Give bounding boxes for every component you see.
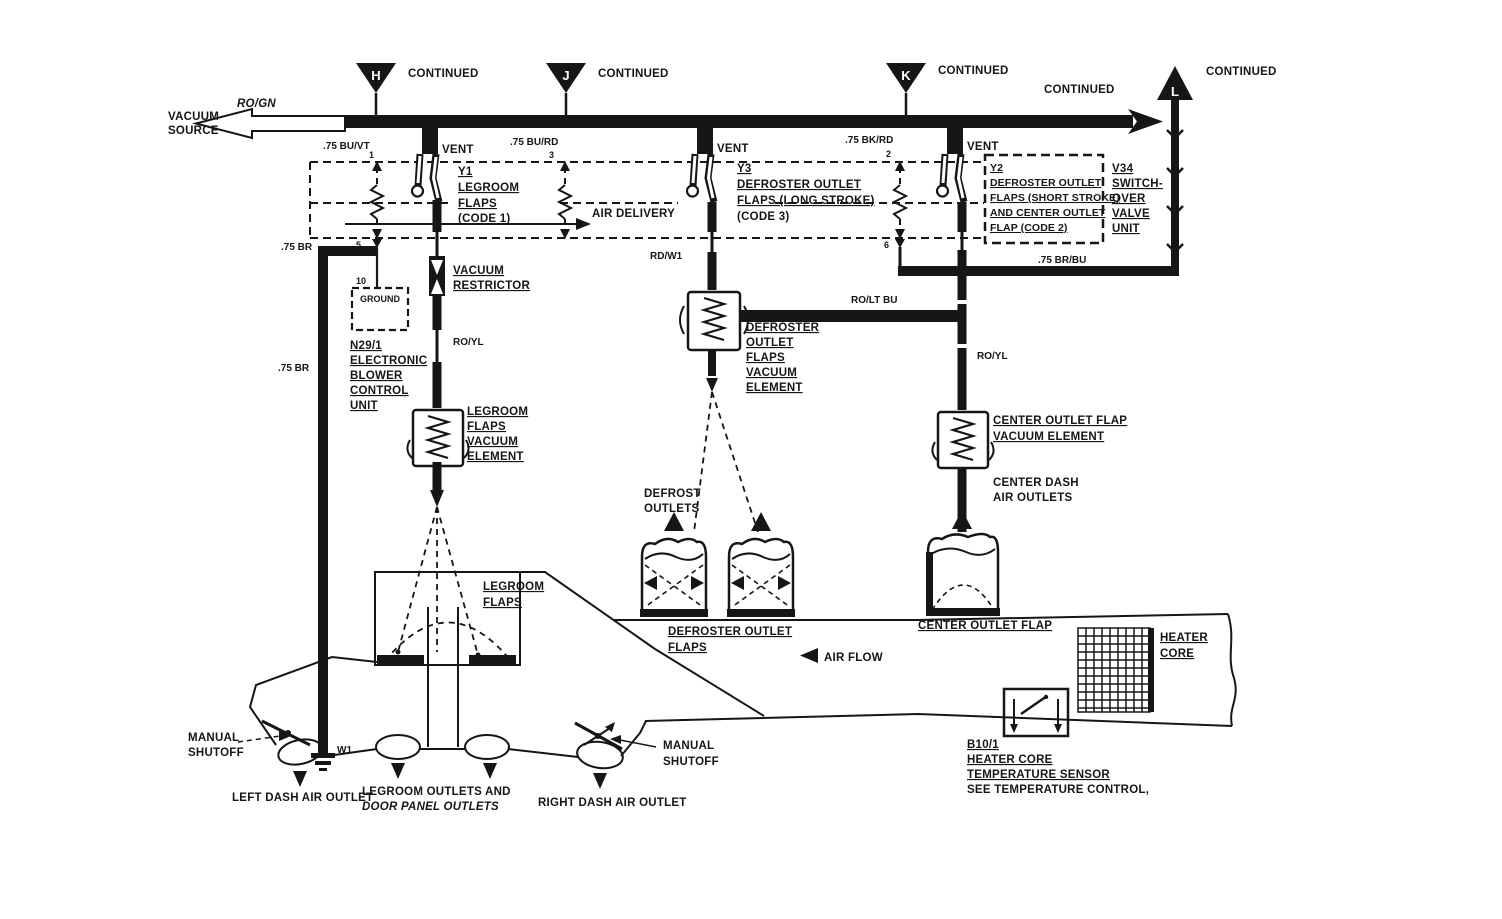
outlet-arrow-1-icon bbox=[293, 771, 307, 787]
defrost-duct-left bbox=[640, 539, 708, 617]
defroster-element-tip-icon bbox=[706, 378, 718, 392]
svg-text:UNIT: UNIT bbox=[1112, 223, 1140, 235]
svg-text:(CODE 3): (CODE 3) bbox=[737, 211, 789, 223]
ground-box-label: GROUND bbox=[360, 294, 400, 304]
connector-j: J CONTINUED bbox=[546, 63, 669, 115]
wire-ro-lt-bu-line bbox=[740, 310, 959, 322]
heater-core-edge bbox=[1148, 628, 1154, 712]
legroom-linkage-dashed bbox=[398, 507, 478, 655]
svg-text:AND CENTER OUTLET: AND CENTER OUTLET bbox=[990, 207, 1106, 219]
svg-text:ELEMENT: ELEMENT bbox=[467, 451, 524, 463]
svg-text:SEE TEMPERATURE CONTROL,: SEE TEMPERATURE CONTROL, bbox=[967, 784, 1149, 796]
port-1: 1 bbox=[369, 150, 374, 160]
svg-text:VACUUM: VACUUM bbox=[467, 436, 518, 448]
right-dash-outlet-label: RIGHT DASH AIR OUTLET bbox=[538, 797, 687, 809]
solenoid-column-right bbox=[894, 161, 906, 239]
temperature-sensor-box bbox=[1004, 689, 1068, 736]
svg-text:B10/1: B10/1 bbox=[967, 739, 999, 751]
wire-ro-lt-bu-label: RO/LT BU bbox=[851, 295, 897, 306]
svg-text:ELECTRONIC: ELECTRONIC bbox=[350, 355, 427, 367]
svg-text:OUTLET: OUTLET bbox=[746, 337, 794, 349]
svg-text:Y3: Y3 bbox=[737, 163, 752, 175]
left-dash-outlet-label: LEFT DASH AIR OUTLET bbox=[232, 792, 373, 804]
junction-right-icon bbox=[895, 239, 905, 248]
air-delivery-arrowhead-icon bbox=[576, 218, 591, 230]
wire-bu-rd-label: .75 BU/RD bbox=[510, 137, 558, 148]
svg-text:OUTLETS: OUTLETS bbox=[644, 503, 699, 515]
outlet-arrow-3-icon bbox=[483, 763, 497, 779]
svg-text:MANUAL: MANUAL bbox=[663, 740, 714, 752]
svg-text:FLAPS (SHORT STROKE): FLAPS (SHORT STROKE) bbox=[990, 192, 1120, 204]
svg-text:UNIT: UNIT bbox=[350, 400, 378, 412]
svg-text:MANUAL: MANUAL bbox=[188, 732, 239, 744]
legroom-actuator-line bbox=[429, 200, 445, 408]
svg-text:V34: V34 bbox=[1112, 163, 1134, 175]
svg-text:K: K bbox=[901, 68, 911, 83]
svg-text:CENTER OUTLET FLAP: CENTER OUTLET FLAP bbox=[993, 415, 1127, 427]
svg-text:CORE: CORE bbox=[1160, 648, 1194, 660]
svg-text:N29/1: N29/1 bbox=[350, 340, 382, 352]
vacuum-diagram: VACUUM SOURCE RO/GN H CONTINUED J CONTIN… bbox=[0, 0, 1502, 919]
legroom-vacuum-element bbox=[407, 410, 468, 490]
svg-text:DEFROSTER OUTLET: DEFROSTER OUTLET bbox=[668, 626, 792, 638]
manual-shutoff-right-label: MANUAL SHUTOFF bbox=[663, 740, 719, 768]
svg-text:LEGROOM OUTLETS AND: LEGROOM OUTLETS AND bbox=[362, 786, 511, 798]
v34-label: V34 SWITCH- OVER VALVE UNIT bbox=[1112, 163, 1163, 235]
valve-y2-label: Y2 DEFROSTER OUTLET FLAPS (SHORT STROKE)… bbox=[990, 162, 1120, 234]
manifold-arrow-right-icon bbox=[1128, 109, 1163, 134]
svg-text:H: H bbox=[371, 68, 380, 83]
defroster-element-label: DEFROSTER OUTLET FLAPS VACUUM ELEMENT bbox=[746, 322, 820, 394]
vacuum-source-label: VACUUM bbox=[168, 111, 219, 123]
svg-text:DEFROSTER: DEFROSTER bbox=[746, 322, 820, 334]
svg-text:FLAPS: FLAPS bbox=[746, 352, 785, 364]
port-6: 6 bbox=[884, 240, 889, 250]
svg-text:TEMPERATURE SENSOR: TEMPERATURE SENSOR bbox=[967, 769, 1110, 781]
valve-y3-label: Y3 DEFROSTER OUTLET FLAPS (LONG STROKE) … bbox=[737, 163, 875, 223]
svg-text:SHUTOFF: SHUTOFF bbox=[188, 747, 244, 759]
wire-br-upper-label: .75 BR bbox=[281, 242, 313, 253]
heater-core-label: HEATER CORE bbox=[1160, 632, 1208, 660]
valve-y1-label: Y1 LEGROOM FLAPS (CODE 1) bbox=[458, 166, 519, 225]
connector-h: H CONTINUED bbox=[356, 63, 479, 115]
legroom-element-tip-icon bbox=[430, 490, 444, 507]
port-3: 3 bbox=[549, 150, 554, 160]
svg-text:L: L bbox=[1171, 84, 1179, 99]
wire-bk-rd-label: .75 BK/RD bbox=[845, 135, 893, 146]
wire-rd-w1-label: RD/W1 bbox=[650, 251, 683, 262]
svg-text:FLAPS (LONG STROKE): FLAPS (LONG STROKE) bbox=[737, 195, 875, 207]
center-duct-arrow-icon bbox=[952, 510, 972, 529]
svg-text:SWITCH-: SWITCH- bbox=[1112, 178, 1163, 190]
manual-shutoff-left-label: MANUAL SHUTOFF bbox=[188, 732, 244, 759]
continued-j-label: CONTINUED bbox=[598, 68, 669, 80]
svg-text:SHUTOFF: SHUTOFF bbox=[663, 756, 719, 768]
svg-text:VALVE: VALVE bbox=[1112, 208, 1150, 220]
svg-text:LEGROOM: LEGROOM bbox=[467, 406, 528, 418]
svg-text:DEFROST: DEFROST bbox=[644, 488, 701, 500]
vent-valve-middle bbox=[687, 128, 714, 202]
svg-text:CENTER OUTLET FLAP: CENTER OUTLET FLAP bbox=[918, 620, 1052, 632]
air-flow-label: AIR FLOW bbox=[824, 652, 883, 664]
svg-text:BLOWER: BLOWER bbox=[350, 370, 403, 382]
center-element-label: CENTER OUTLET FLAP VACUUM ELEMENT bbox=[993, 415, 1127, 443]
wire-ro-gn: RO/GN bbox=[237, 98, 276, 110]
svg-text:AIR OUTLETS: AIR OUTLETS bbox=[993, 492, 1072, 504]
vent-right-label: VENT bbox=[967, 141, 999, 153]
svg-text:FLAPS: FLAPS bbox=[458, 198, 497, 210]
svg-text:FLAPS: FLAPS bbox=[467, 421, 506, 433]
vacuum-source-label2: SOURCE bbox=[168, 125, 219, 137]
vacuum-manifold-line bbox=[196, 109, 1163, 138]
defroster-vacuum-element bbox=[680, 292, 748, 376]
defrost-duct-right bbox=[727, 539, 795, 617]
legroom-flaps-label: LEGROOM FLAPS bbox=[483, 581, 544, 609]
defroster-actuator-line bbox=[708, 202, 717, 290]
continued-h-label: CONTINUED bbox=[408, 68, 479, 80]
wire-bu-vt-label: .75 BU/VT bbox=[323, 141, 370, 152]
legroom-element-label: LEGROOM FLAPS VACUUM ELEMENT bbox=[467, 406, 528, 463]
wire-br-bu-line bbox=[898, 266, 1179, 276]
svg-text:FLAPS: FLAPS bbox=[483, 597, 522, 609]
svg-text:FLAP (CODE 2): FLAP (CODE 2) bbox=[990, 222, 1068, 234]
continued-k-label: CONTINUED bbox=[938, 65, 1009, 77]
wire-ro-yl-left-label: RO/YL bbox=[453, 337, 484, 348]
housing-bottom-edge bbox=[645, 714, 1232, 726]
svg-text:LEGROOM: LEGROOM bbox=[483, 581, 544, 593]
svg-text:Y1: Y1 bbox=[458, 166, 473, 178]
ground-terminal-number: 10 bbox=[356, 276, 366, 286]
svg-text:OVER: OVER bbox=[1112, 193, 1146, 205]
svg-text:DOOR PANEL OUTLETS: DOOR PANEL OUTLETS bbox=[362, 801, 499, 813]
center-vacuum-element bbox=[932, 412, 993, 468]
center-duct bbox=[926, 534, 1000, 616]
svg-text:VACUUM ELEMENT: VACUUM ELEMENT bbox=[993, 431, 1104, 443]
heater-band-right-edge bbox=[1228, 614, 1236, 726]
svg-text:HEATER CORE: HEATER CORE bbox=[967, 754, 1053, 766]
air-delivery-label: AIR DELIVERY bbox=[592, 208, 675, 220]
lower-housing-outline bbox=[250, 657, 646, 771]
vacuum-restrictor-label: VACUUM RESTRICTOR bbox=[453, 265, 530, 292]
center-dash-outlets-label: CENTER DASH AIR OUTLETS bbox=[993, 477, 1079, 504]
vent-left-label: VENT bbox=[442, 144, 474, 156]
svg-text:Y2: Y2 bbox=[990, 162, 1003, 174]
svg-text:RESTRICTOR: RESTRICTOR bbox=[453, 280, 530, 292]
svg-text:(CODE 1): (CODE 1) bbox=[458, 213, 510, 225]
svg-text:J: J bbox=[562, 68, 569, 83]
center-actuator-line bbox=[956, 202, 969, 410]
continued-main-label: CONTINUED bbox=[1044, 84, 1115, 96]
wire-br-path bbox=[323, 251, 377, 753]
connector-l: L CONTINUED bbox=[1157, 66, 1277, 270]
legroom-outlets-label: LEGROOM OUTLETS AND DOOR PANEL OUTLETS bbox=[362, 786, 511, 813]
wire-br-lower-label: .75 BR bbox=[278, 363, 310, 374]
svg-text:VACUUM: VACUUM bbox=[746, 367, 797, 379]
solenoid-column-left bbox=[371, 161, 383, 239]
vent-middle-label: VENT bbox=[717, 143, 749, 155]
outlet-arrow-2-icon bbox=[391, 763, 405, 779]
connector-k: K CONTINUED bbox=[886, 63, 1009, 115]
svg-text:LEGROOM: LEGROOM bbox=[458, 182, 519, 194]
wire-ro-yl-right-label: RO/YL bbox=[977, 351, 1008, 362]
svg-text:DEFROSTER OUTLET: DEFROSTER OUTLET bbox=[990, 177, 1102, 189]
port-2: 2 bbox=[886, 149, 891, 159]
continued-l-label: CONTINUED bbox=[1206, 66, 1277, 78]
control-dashed-lines bbox=[310, 162, 984, 238]
solenoid-column-middle bbox=[559, 161, 571, 239]
svg-text:FLAPS: FLAPS bbox=[668, 642, 707, 654]
wire-br-bu-label: .75 BR/BU bbox=[1038, 255, 1086, 266]
defroster-linkage-dashed bbox=[694, 392, 758, 532]
svg-text:CENTER DASH: CENTER DASH bbox=[993, 477, 1079, 489]
n29-label: N29/1 ELECTRONIC BLOWER CONTROL UNIT bbox=[350, 340, 427, 412]
flap-labels: DEFROSTER OUTLET FLAPS CENTER OUTLET FLA… bbox=[668, 620, 1052, 654]
defrost-outlets-label: DEFROST OUTLETS bbox=[644, 488, 701, 515]
outlet-arrow-4-icon bbox=[593, 773, 607, 789]
heater-core-grid bbox=[1078, 628, 1150, 712]
housing-mid-diagonal bbox=[655, 649, 764, 716]
svg-text:HEATER: HEATER bbox=[1160, 632, 1208, 644]
air-flow-arrow-icon bbox=[800, 648, 818, 663]
vent-valve-left bbox=[412, 128, 439, 202]
svg-text:CONTROL: CONTROL bbox=[350, 385, 409, 397]
svg-text:DEFROSTER OUTLET: DEFROSTER OUTLET bbox=[737, 179, 861, 191]
b10-label: B10/1 HEATER CORE TEMPERATURE SENSOR SEE… bbox=[967, 739, 1149, 796]
svg-text:VACUUM: VACUUM bbox=[453, 265, 504, 277]
vent-valve-right bbox=[937, 128, 964, 202]
svg-text:ELEMENT: ELEMENT bbox=[746, 382, 803, 394]
